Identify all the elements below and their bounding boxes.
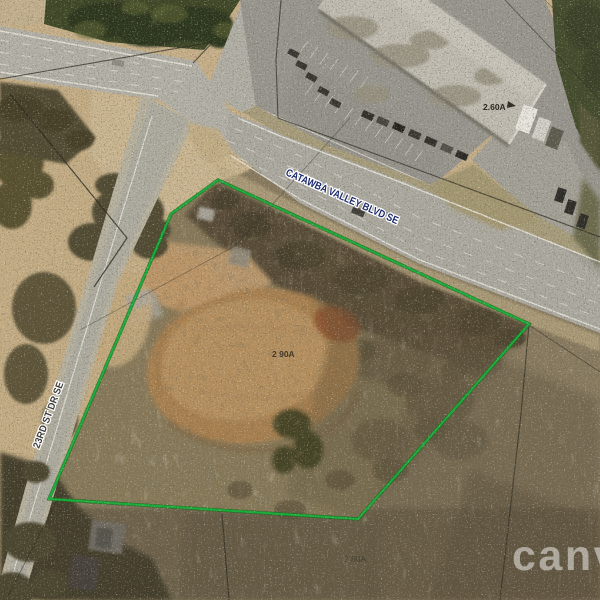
svg-text:2 80A: 2 80A xyxy=(344,554,367,564)
svg-text:2 90A: 2 90A xyxy=(272,349,295,359)
svg-text:canva: canva xyxy=(512,532,600,580)
svg-text:2.60A: 2.60A xyxy=(483,102,506,112)
